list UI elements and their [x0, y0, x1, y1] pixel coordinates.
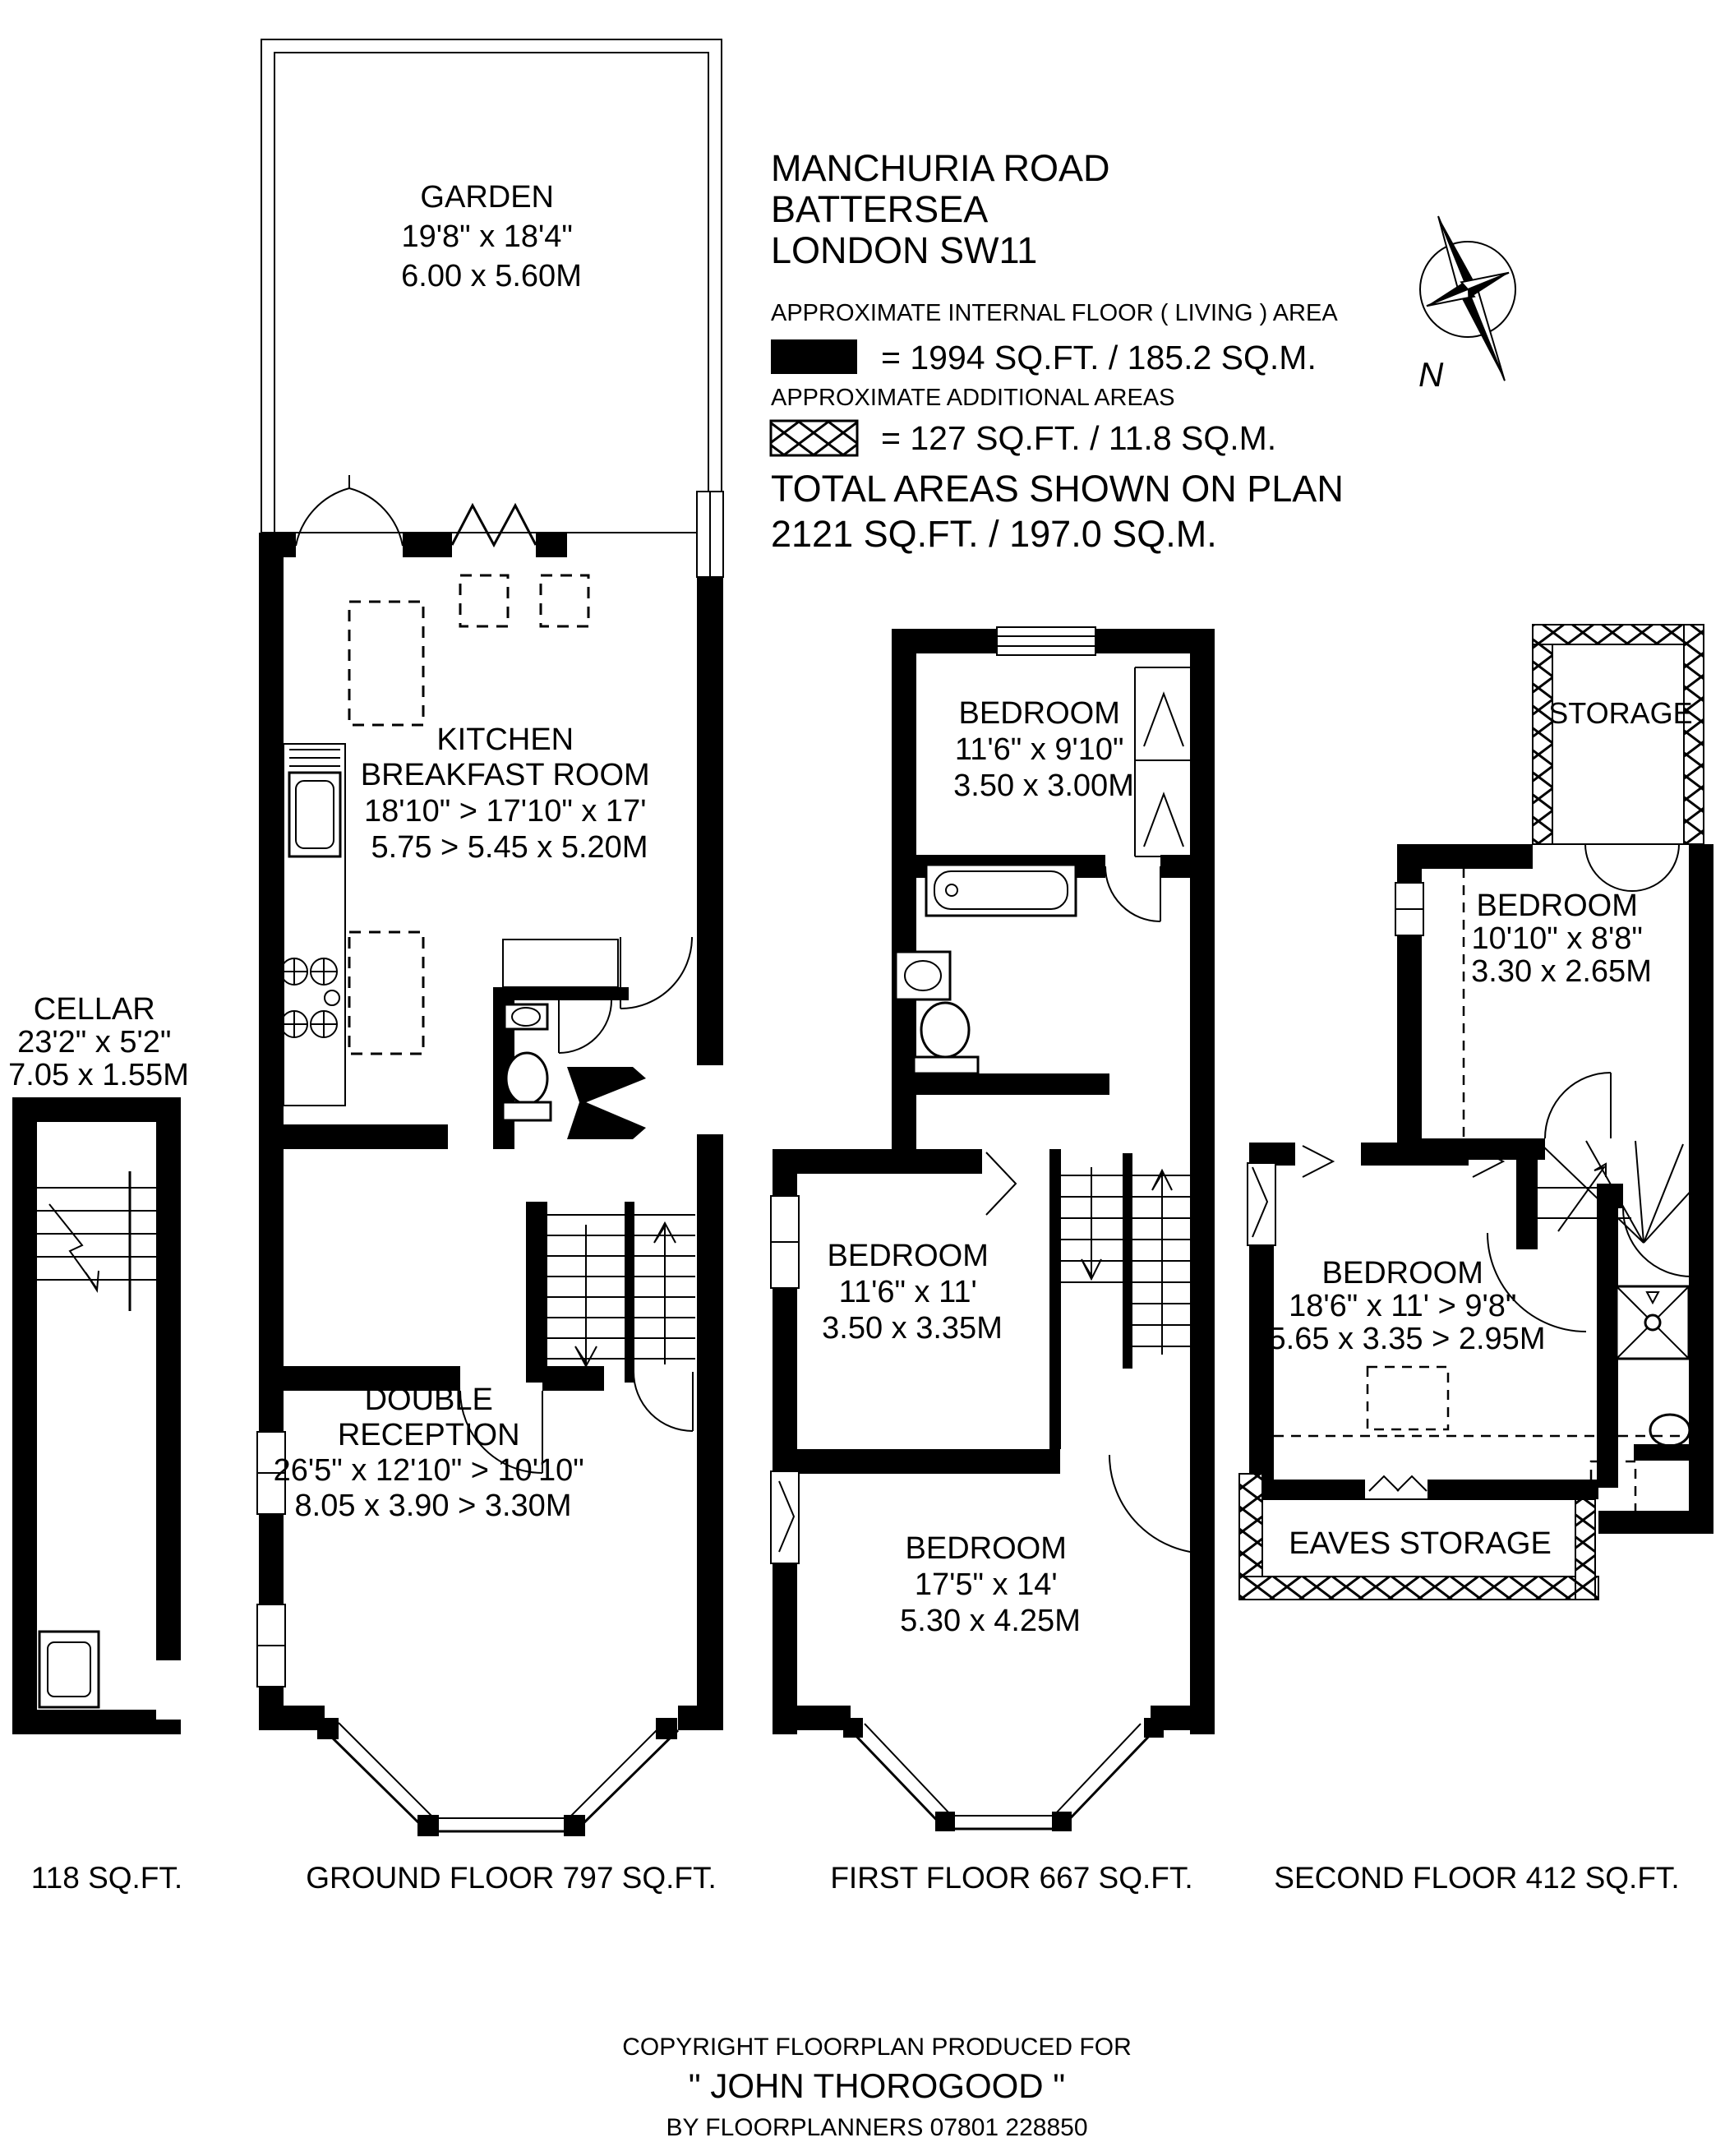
rooflight: [460, 575, 508, 626]
caption-second-floor: SECOND FLOOR 412 SQ.FT.: [1274, 1861, 1679, 1895]
door-arc: [1623, 1208, 1691, 1277]
door-arc: [559, 1000, 611, 1053]
eaves-storage-label: EAVES STORAGE: [1289, 1526, 1552, 1561]
bathroom-basin: [896, 952, 950, 1000]
wall-segment: [259, 1124, 448, 1149]
stair-arrow: [575, 1225, 597, 1366]
wall-segment: [542, 1366, 604, 1391]
garden-label: GARDEN 19'8" x 18'4" 6.00 x 5.60M: [401, 180, 582, 293]
door-zigzag: [986, 1152, 1016, 1215]
bedroom-ff-top-label: BEDROOM 11'6" x 9'10" 3.50 x 3.00M: [953, 696, 1134, 803]
copyright-line1: COPYRIGHT FLOORPLAN PRODUCED FOR: [622, 2034, 1132, 2061]
storage-room: STORAGE: [1533, 625, 1704, 891]
compass-icon: [1394, 198, 1548, 399]
bath: [926, 865, 1076, 916]
dormer-window: [1248, 1163, 1275, 1245]
bathroom: [892, 855, 1190, 1095]
stair-arrow: [1082, 1167, 1101, 1279]
wall-segment: [697, 577, 723, 932]
door-arc: [1585, 844, 1632, 891]
caption-ground-floor: GROUND FLOOR 797 SQ.FT.: [306, 1861, 717, 1895]
door-bedroom-sf-top: [1545, 1073, 1611, 1138]
ground-floor-plan: KITCHEN BREAKFAST ROOM 18'10" > 17'10" x…: [257, 475, 723, 1836]
wall-segment: [1190, 629, 1215, 1734]
address-line1: MANCHURIA ROAD: [771, 147, 1110, 189]
wardrobes: [1135, 667, 1190, 856]
cellar-label: CELLAR 23'2" x 5'2" 7.05 x 1.55M: [8, 992, 189, 1092]
wall-segment: [916, 1149, 982, 1174]
wall-segment: [1689, 844, 1713, 1143]
floorplan-canvas: MANCHURIA ROAD BATTERSEA LONDON SW11 APP…: [0, 0, 1725, 2156]
total-areas-label: TOTAL AREAS SHOWN ON PLAN: [771, 468, 1344, 510]
wall-segment: [678, 1706, 723, 1730]
additional-area-swatch: [771, 421, 857, 455]
address-line3: LONDON SW11: [771, 229, 1037, 271]
rooflight: [1368, 1367, 1448, 1429]
wall-segment: [403, 533, 452, 557]
rooflight: [541, 575, 588, 626]
appliance-dashed: [349, 602, 423, 725]
door-reception-rear: [634, 1372, 693, 1431]
address-line2: BATTERSEA: [771, 188, 988, 230]
bedroom-window: [771, 1471, 799, 1563]
door-zigzag: [1397, 1476, 1427, 1491]
internal-area-swatch: [771, 339, 857, 374]
second-floor-plan: STORAGE BEDROOM 10'10" x 8'8" 3.30 x 2.6…: [1239, 625, 1713, 1600]
door-zigzag: [1369, 1476, 1399, 1491]
floor-captions: 118 SQ.FT. GROUND FLOOR 797 SQ.FT. FIRST…: [31, 1861, 1680, 1895]
wall-segment: [773, 1706, 851, 1730]
wc-toilet: [506, 1053, 547, 1104]
cellar-door-gap: [156, 1660, 181, 1720]
shower-room-toilet: [1650, 1415, 1690, 1446]
wall-segment: [259, 533, 284, 1155]
wall-segment: [536, 533, 567, 557]
kitchen-label: KITCHEN BREAKFAST ROOM 18'10" > 17'10" x…: [361, 723, 659, 865]
wall-segment: [259, 533, 296, 557]
bathroom-toilet: [921, 1003, 969, 1057]
first-floor-plan: BEDROOM 11'6" x 9'10" 3.50 x 3.00M: [771, 627, 1215, 1831]
copyright-line3: BY FLOORPLANNERS 07801 228850: [666, 2114, 1087, 2141]
wall-segment: [1049, 1149, 1061, 1449]
wall-segment: [1249, 1480, 1365, 1499]
garden: GARDEN 19'8" x 18'4" 6.00 x 5.60M: [261, 39, 722, 533]
footer: COPYRIGHT FLOORPLAN PRODUCED FOR " JOHN …: [622, 2034, 1132, 2141]
additional-area-value: = 127 SQ.FT. / 11.8 SQ.M.: [881, 419, 1276, 457]
wall-segment: [697, 1155, 723, 1730]
door-arc: [1105, 866, 1160, 921]
stair-arrow: [654, 1223, 676, 1364]
worktop: [503, 939, 618, 987]
storage-label: STORAGE: [1548, 696, 1692, 730]
reception-label: DOUBLE RECEPTION 26'5" x 12'10" > 10'10"…: [274, 1383, 593, 1523]
window-zigzag: [1303, 1146, 1333, 1177]
caption-first-floor: FIRST FLOOR 667 SQ.FT.: [830, 1861, 1192, 1895]
wall-segment: [773, 1449, 1060, 1474]
bedroom-window: [997, 627, 1095, 655]
door-kitchen-hall: [620, 937, 692, 1009]
bay-window-ground: [317, 1718, 678, 1836]
bedroom-ff-bottom-label: BEDROOM 17'5" x 14' 5.30 x 4.25M: [900, 1531, 1081, 1638]
caption-cellar: 118 SQ.FT.: [31, 1861, 182, 1895]
wall-segment: [1361, 1143, 1469, 1166]
bedroom-ff-mid-label: BEDROOM 11'6" x 11' 3.50 x 3.35M: [822, 1239, 1003, 1346]
stairs-first: [1061, 1153, 1190, 1369]
french-doors: [296, 475, 403, 546]
bedroom-sf-top-label: BEDROOM 10'10" x 8'8" 3.30 x 2.65M: [1471, 889, 1652, 989]
bedroom-sf-main-label: BEDROOM 18'6" x 11' > 9'8" 5.65 x 3.35 >…: [1269, 1256, 1546, 1356]
cellar-plan: CELLAR 23'2" x 5'2" 7.05 x 1.55M: [8, 992, 189, 1734]
wall-segment: [1689, 1143, 1713, 1534]
compass-north-label: N: [1418, 355, 1444, 394]
wall-segment: [259, 1706, 325, 1730]
stair-arrow: [1152, 1170, 1172, 1355]
internal-area-value: = 1994 SQ.FT. / 185.2 SQ.M.: [881, 339, 1317, 376]
internal-area-label: APPROXIMATE INTERNAL FLOOR ( LIVING ) AR…: [771, 300, 1338, 326]
door-arc: [1632, 844, 1679, 891]
bay-window-first: [843, 1718, 1164, 1831]
additional-area-label: APPROXIMATE ADDITIONAL AREAS: [771, 385, 1175, 411]
wall-segment: [1428, 1480, 1598, 1499]
stairs-ground: [526, 1202, 695, 1383]
appliance-dashed: [349, 932, 423, 1054]
header: MANCHURIA ROAD BATTERSEA LONDON SW11 APP…: [771, 147, 1549, 555]
total-areas-value: 2121 SQ.FT. / 197.0 SQ.M.: [771, 513, 1217, 555]
open-wall-zigzag: [452, 506, 536, 545]
copyright-line2: " JOHN THOROGOOD ": [689, 2066, 1065, 2105]
